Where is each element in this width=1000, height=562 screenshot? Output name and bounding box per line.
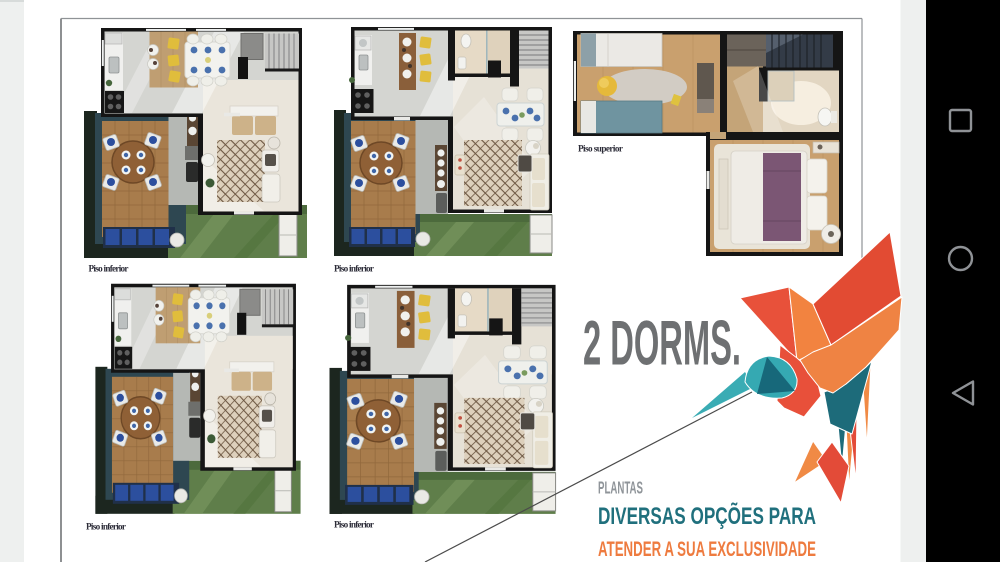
svg-text:ATENDER A SUA EXCLUSIVIDADE: ATENDER A SUA EXCLUSIVIDADE — [598, 538, 816, 561]
svg-text:Piso inferior: Piso inferior — [334, 264, 374, 274]
svg-text:Piso inferior: Piso inferior — [334, 520, 374, 530]
svg-text:Piso inferior: Piso inferior — [89, 264, 129, 274]
svg-text:DIVERSAS OPÇÕES PARA: DIVERSAS OPÇÕES PARA — [598, 502, 816, 530]
svg-text:2 DORMS.: 2 DORMS. — [583, 309, 741, 379]
svg-text:Piso superior: Piso superior — [578, 144, 623, 154]
svg-text:PLANTAS: PLANTAS — [598, 478, 643, 498]
svg-text:Piso inferior: Piso inferior — [86, 522, 126, 532]
